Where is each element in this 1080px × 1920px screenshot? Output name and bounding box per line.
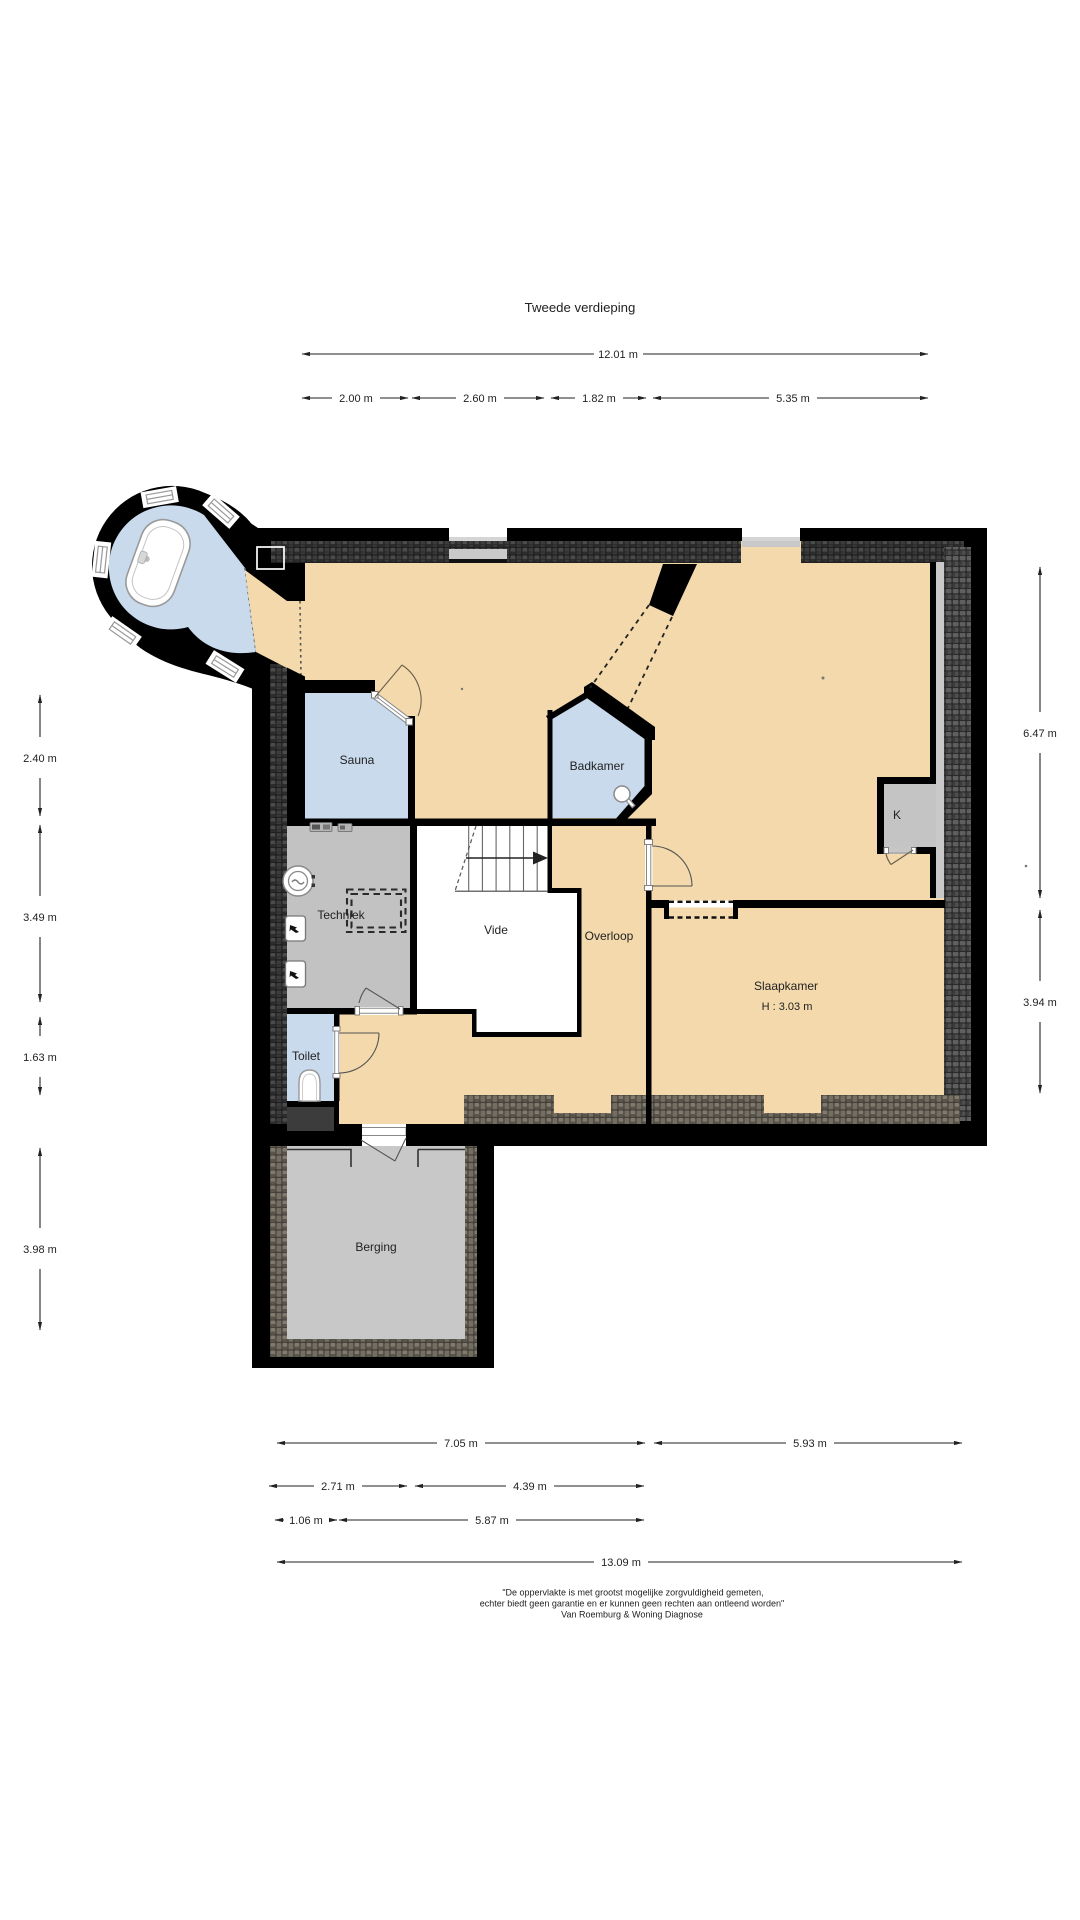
svg-text:Sauna: Sauna [340, 753, 375, 767]
svg-text:3.98 m: 3.98 m [23, 1244, 57, 1256]
svg-text:2.60 m: 2.60 m [463, 393, 497, 405]
svg-text:Slaapkamer: Slaapkamer [754, 979, 818, 993]
svg-text:"De oppervlakte is met grootst: "De oppervlakte is met grootst mogelijke… [502, 1588, 763, 1598]
svg-text:5.87 m: 5.87 m [475, 1515, 509, 1527]
svg-text:1.82 m: 1.82 m [582, 393, 616, 405]
svg-text:3.49 m: 3.49 m [23, 912, 57, 924]
svg-text:Badkamer: Badkamer [570, 759, 625, 773]
svg-text:5.93 m: 5.93 m [793, 1438, 827, 1450]
svg-text:4.39 m: 4.39 m [513, 1481, 547, 1493]
svg-text:1.63 m: 1.63 m [23, 1052, 57, 1064]
svg-text:Berging: Berging [355, 1240, 396, 1254]
svg-text:2.71 m: 2.71 m [321, 1481, 355, 1493]
svg-text:H : 3.03 m: H : 3.03 m [762, 1001, 813, 1013]
svg-text:Van Roemburg & Woning Diagnose: Van Roemburg & Woning Diagnose [561, 1610, 703, 1620]
svg-text:2.40 m: 2.40 m [23, 753, 57, 765]
svg-text:7.05 m: 7.05 m [444, 1438, 478, 1450]
svg-text:12.01 m: 12.01 m [598, 349, 638, 361]
svg-text:Techniek: Techniek [317, 908, 365, 922]
svg-text:Overloop: Overloop [585, 929, 634, 943]
svg-text:Toilet: Toilet [292, 1049, 321, 1063]
svg-text:echter biedt geen garantie en: echter biedt geen garantie en er kunnen … [480, 1599, 784, 1609]
svg-text:Tweede verdieping: Tweede verdieping [525, 300, 636, 315]
svg-text:K: K [893, 808, 901, 822]
svg-text:5.35 m: 5.35 m [776, 393, 810, 405]
svg-text:1.06 m: 1.06 m [289, 1515, 323, 1527]
svg-text:3.94 m: 3.94 m [1023, 997, 1057, 1009]
svg-text:2.00 m: 2.00 m [339, 393, 373, 405]
svg-text:13.09 m: 13.09 m [601, 1557, 641, 1569]
svg-text:Vide: Vide [484, 923, 508, 937]
svg-text:6.47 m: 6.47 m [1023, 728, 1057, 740]
